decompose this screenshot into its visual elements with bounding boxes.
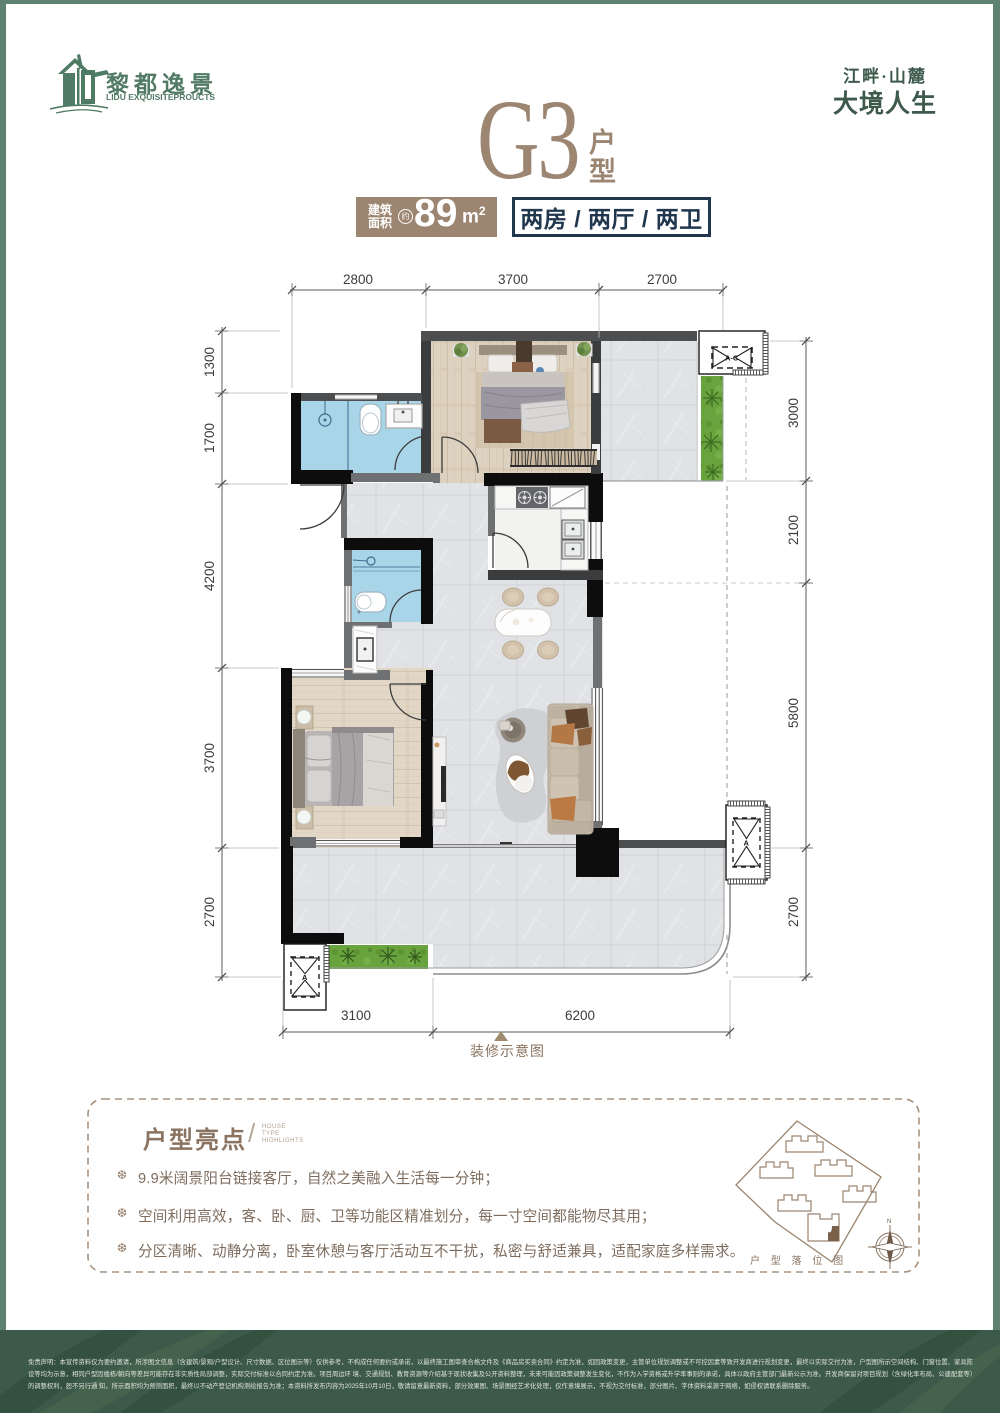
svg-text:2800: 2800 <box>343 272 373 287</box>
svg-text:2700: 2700 <box>786 897 801 927</box>
svg-text:2700: 2700 <box>647 272 677 287</box>
svg-text:5800: 5800 <box>786 698 801 728</box>
svg-text:1700: 1700 <box>202 423 217 453</box>
svg-text:A: A <box>744 839 750 848</box>
svg-text:1300: 1300 <box>202 347 217 377</box>
svg-text:2100: 2100 <box>786 515 801 545</box>
svg-text:3700: 3700 <box>202 743 217 773</box>
svg-text:A-C: A-C <box>725 353 739 362</box>
svg-text:N: N <box>887 1219 891 1225</box>
svg-text:6200: 6200 <box>565 1008 595 1023</box>
svg-text:3700: 3700 <box>498 272 528 287</box>
svg-text:A: A <box>302 973 308 982</box>
svg-text:3000: 3000 <box>786 398 801 428</box>
svg-text:3100: 3100 <box>341 1008 371 1023</box>
svg-text:4200: 4200 <box>202 561 217 591</box>
svg-text:2700: 2700 <box>202 897 217 927</box>
svg-text:装修示意图: 装修示意图 <box>470 1043 545 1059</box>
